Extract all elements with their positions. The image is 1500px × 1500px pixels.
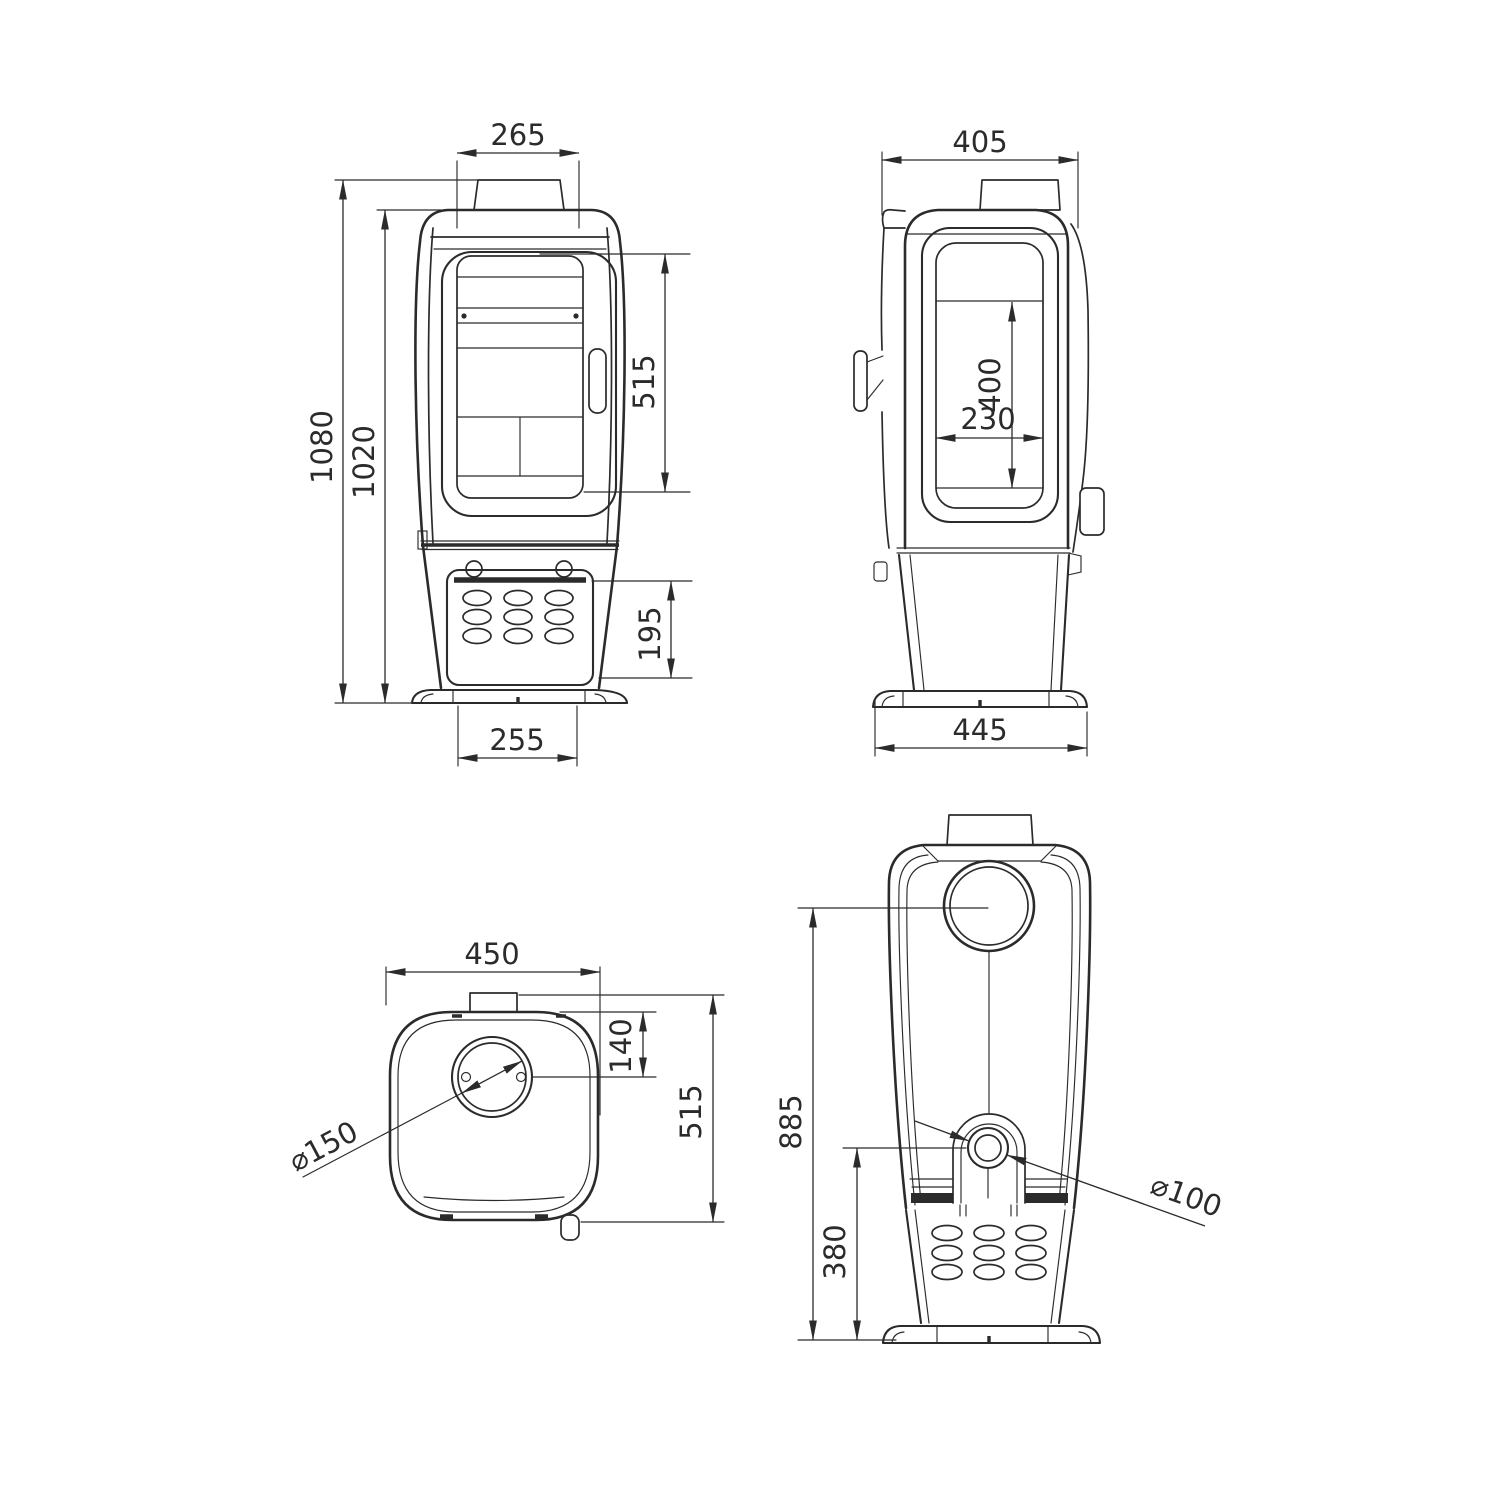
dim-text-140: 140	[604, 1018, 638, 1073]
side-flue-collar	[980, 180, 1060, 210]
dim-text-380: 380	[818, 1224, 852, 1279]
front-body-inner-lines	[429, 228, 612, 543]
side-door-edge	[881, 228, 889, 548]
dim-rear-flue-centre-height: 885	[774, 908, 988, 1340]
side-rear-outlet-cover	[1080, 488, 1104, 535]
rear-flue-circle	[944, 861, 1034, 951]
dim-text-255: 255	[489, 723, 544, 757]
rear-vent-grille	[932, 1226, 1046, 1280]
side-door-top-edge	[883, 210, 906, 228]
rear-outlet-circle	[968, 1128, 1008, 1168]
front-ash-door	[447, 570, 593, 685]
rear-base-plinth	[883, 1326, 1100, 1343]
front-vent-grille	[463, 591, 573, 644]
front-flue-collar	[474, 180, 564, 210]
dim-text-515-top: 515	[674, 1084, 708, 1139]
front-view: 265 1080 1020 515 195 255	[305, 118, 692, 766]
side-door-handle	[854, 351, 867, 411]
dim-text-515-front: 515	[627, 354, 661, 409]
dim-text-885: 885	[774, 1094, 808, 1149]
dim-text-1020: 1020	[347, 425, 381, 499]
top-door-handle	[561, 1215, 579, 1240]
dim-side-base-depth: 445	[875, 700, 1087, 756]
stove-dimension-drawing: 265 1080 1020 515 195 255	[0, 0, 1500, 1500]
dim-text-445: 445	[952, 713, 1007, 747]
front-glass-detail-lines	[457, 277, 583, 476]
side-pedestal-outline	[899, 555, 1069, 690]
rear-view: 885 380 ⌀100	[774, 815, 1226, 1343]
dim-text-405: 405	[952, 125, 1007, 159]
dim-text-265: 265	[490, 118, 545, 152]
dim-text-230: 230	[960, 402, 1015, 436]
dim-front-base-width: 255	[458, 706, 577, 766]
technical-drawing-page: 265 1080 1020 515 195 255	[0, 0, 1500, 1500]
dim-text-450: 450	[464, 937, 519, 971]
dim-side-window-width: 230	[936, 402, 1043, 438]
dim-text-195: 195	[633, 606, 667, 661]
rear-pedestal-outline	[906, 1210, 1074, 1323]
side-ash-knob	[874, 562, 887, 581]
front-door-handle	[589, 349, 606, 413]
side-view: 405 400 230 445	[854, 125, 1104, 756]
dim-front-overall-height: 1080	[305, 180, 520, 703]
dim-text-1080: 1080	[305, 410, 339, 484]
rear-flue-collar	[947, 815, 1033, 845]
dim-text-d100: ⌀100	[1146, 1167, 1226, 1224]
dim-rear-outlet-centre-height: 380	[818, 1148, 966, 1340]
dim-front-flue-collar-width: 265	[457, 118, 579, 228]
top-view: ⌀150 450 140 515	[283, 937, 724, 1240]
dim-text-d150: ⌀150	[283, 1114, 363, 1178]
dim-side-window-height: 400	[973, 302, 1012, 488]
dim-front-body-height: 1020	[347, 210, 441, 703]
top-flue-collar-tab	[470, 993, 517, 1012]
